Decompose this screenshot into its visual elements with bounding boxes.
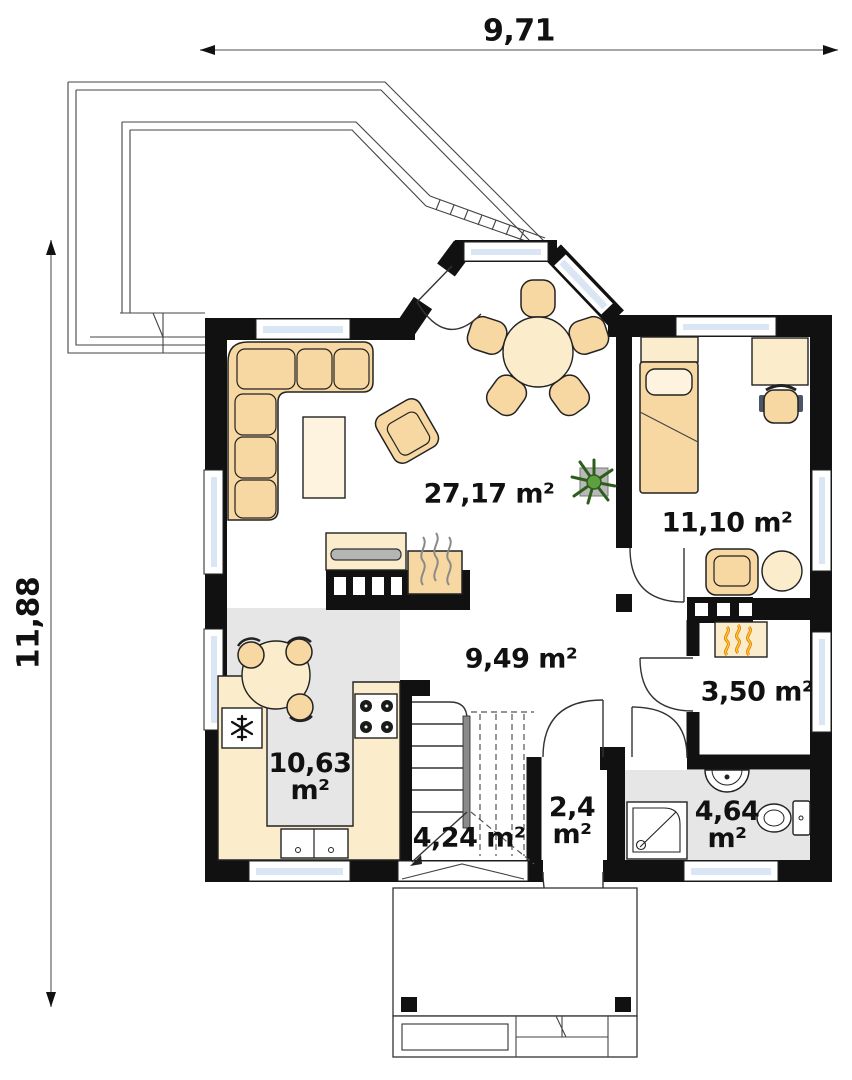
vestibule-area-value: 2,4: [549, 794, 595, 821]
side-table: [762, 551, 802, 591]
porch-steps: [393, 1016, 637, 1057]
chimney-vent: [717, 603, 730, 616]
arrow-down-icon: [46, 992, 56, 1007]
bathroom-area-value: 4,64: [695, 798, 760, 825]
cabinet-door: [334, 577, 346, 595]
bedroom-area-label: 11,10 m²: [662, 510, 793, 537]
kitchen-chair: [286, 638, 312, 665]
porch: [393, 888, 637, 1057]
chimney-vent: [695, 603, 708, 616]
window-kitchen-bottom: [249, 861, 350, 881]
dimension-left: [46, 240, 56, 1007]
coffee-table: [303, 417, 345, 498]
floor-plan-page: 9,71 11,88 27,17 m² 11,10 m² 9,49 m² 3,5…: [0, 0, 852, 1080]
boiler-room-area-label: 3,50 m²: [701, 679, 813, 706]
cabinet-door: [391, 577, 402, 595]
window-boiler-right: [812, 632, 831, 732]
kitchen-sink: [281, 829, 348, 858]
boiler-room-equipment: [715, 622, 767, 657]
shower: [627, 802, 687, 859]
cabinet-door: [353, 577, 365, 595]
toilet-icon: [757, 801, 810, 835]
kitchen-area-value: 10,63: [269, 750, 352, 777]
window-bay-top: [464, 242, 548, 261]
arrow-up-icon: [46, 240, 56, 255]
cooktop: [355, 694, 397, 738]
kitchen-chair: [287, 694, 313, 721]
dimension-width-label: 9,71: [483, 18, 555, 45]
window-bedroom-top: [676, 317, 776, 336]
desk: [752, 338, 808, 385]
window-living-top: [256, 319, 350, 339]
fridge: [222, 708, 262, 748]
dining-table: [503, 317, 573, 387]
arrow-right-icon: [823, 45, 838, 55]
floor-plan-drawing: [0, 0, 852, 1080]
headboard-shelf: [641, 337, 698, 362]
bedroom-armchair: [706, 549, 758, 595]
porch-column: [401, 997, 417, 1012]
pillow: [646, 369, 692, 395]
vestibule-area-label: 2,4 m²: [549, 794, 595, 848]
kitchen-area-unit: m²: [269, 777, 352, 804]
window-bathroom-bottom: [684, 861, 778, 881]
stair-rail: [463, 716, 470, 828]
staircase-area-label: 4,24 m²: [413, 825, 525, 852]
wall-stairs-stub: [400, 680, 430, 696]
furnace: [715, 622, 767, 657]
cabinet-door: [372, 577, 384, 595]
chimney: [687, 597, 753, 623]
window-living-left: [204, 470, 223, 574]
kitchen-area-label: 10,63 m²: [269, 750, 352, 804]
terrace-steps: [90, 313, 205, 353]
dining-chair: [521, 280, 555, 317]
hall-area-label: 9,49 m²: [465, 646, 577, 673]
terrace-edge-hatch: [426, 196, 545, 247]
dimension-height-label: 11,88: [16, 577, 43, 669]
bathroom-area-label: 4,64 m²: [695, 798, 760, 852]
arrow-left-icon: [200, 45, 215, 55]
porch-column: [615, 997, 631, 1012]
living-room-area-label: 27,17 m²: [424, 481, 555, 508]
bathroom-area-unit: m²: [695, 825, 760, 852]
vestibule-area-unit: m²: [549, 821, 595, 848]
window-bedroom-right: [812, 470, 831, 571]
chimney-vent: [739, 603, 752, 616]
tv-icon: [331, 549, 401, 560]
